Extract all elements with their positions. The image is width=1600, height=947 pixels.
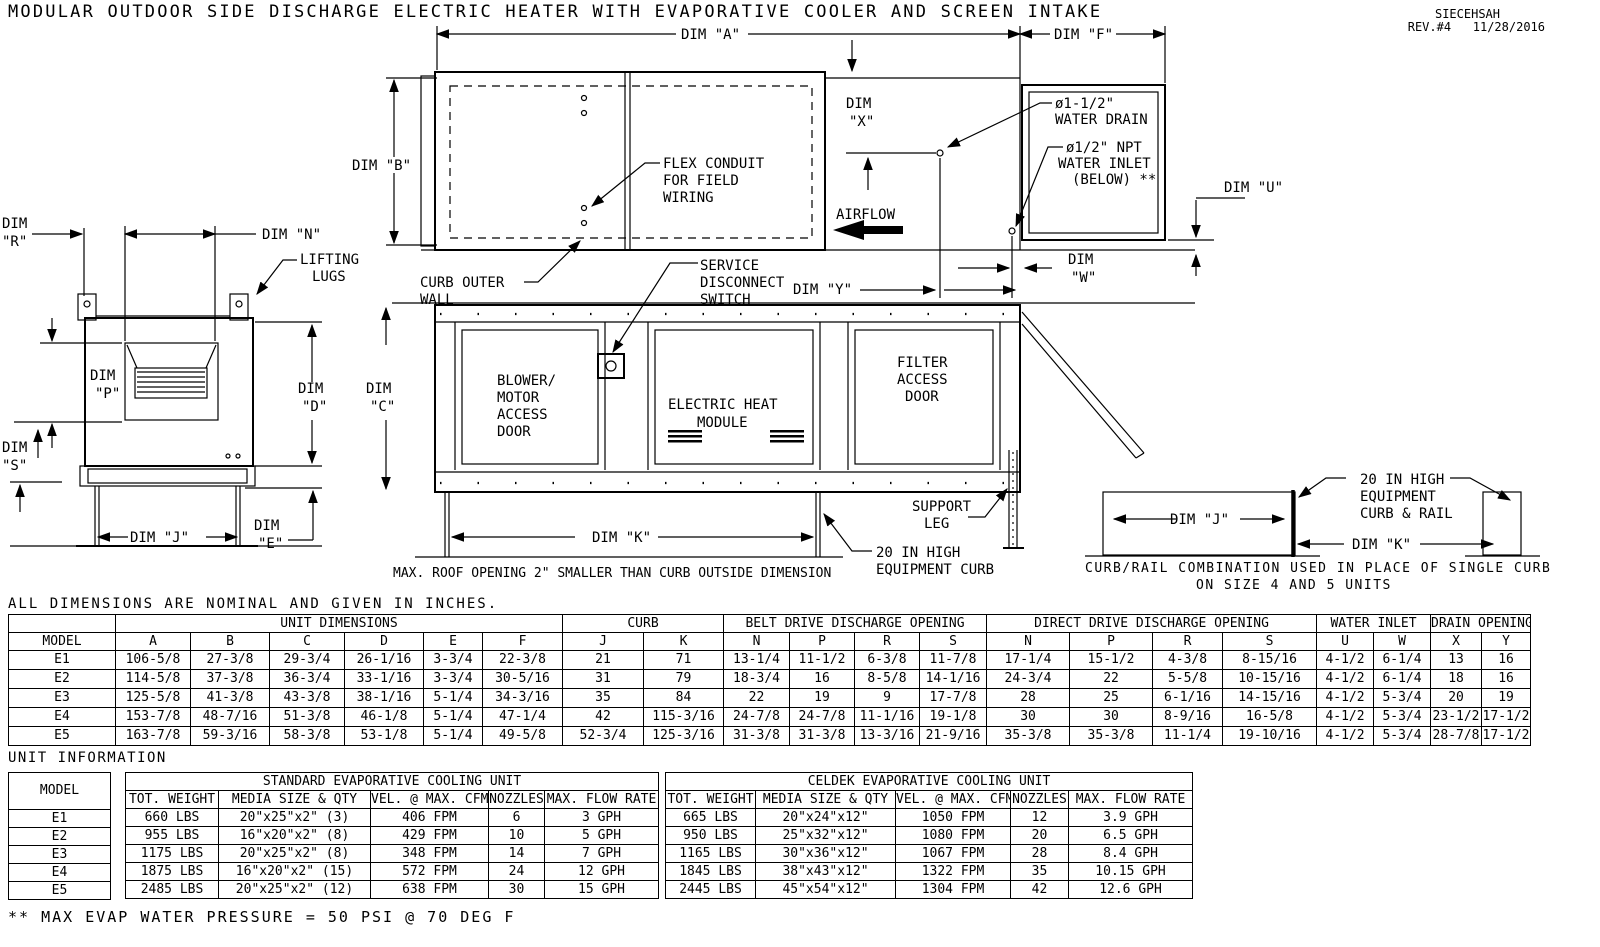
table-cell: 28-7/8 (1431, 727, 1482, 746)
dim-c-label: "C" (370, 399, 395, 415)
filter-door-label: ACCESS (897, 372, 948, 388)
table-cell: 11-1/4 (1153, 727, 1223, 746)
model-header: MODEL (9, 773, 111, 810)
dim-x-label: DIM (846, 96, 871, 112)
column-header: R (1153, 633, 1223, 651)
table-row: E4 (9, 864, 111, 882)
table-cell: 30"x36"x12" (756, 845, 896, 863)
standard-table-body: 660 LBS20"x25"x2" (3)406 FPM63 GPH955 LB… (126, 809, 659, 899)
curb-rail-label: EQUIPMENT (1360, 489, 1436, 505)
column-header: E (424, 633, 483, 651)
table-cell: 29-3/4 (270, 651, 345, 670)
standard-title-row: STANDARD EVAPORATIVE COOLING UNIT (126, 773, 659, 791)
column-header: F (483, 633, 563, 651)
table-cell: 10-15/16 (1223, 670, 1317, 689)
table-cell: 5-1/4 (424, 689, 483, 708)
table-cell: 37-3/8 (191, 670, 270, 689)
table-cell: 5-1/4 (424, 727, 483, 746)
table-cell: 22 (724, 689, 790, 708)
table-cell: 1304 FPM (896, 881, 1011, 899)
water-inlet-label: WATER INLET (1058, 156, 1151, 172)
table-cell: 7 GPH (545, 845, 659, 863)
table-cell: E3 (9, 689, 116, 708)
table-cell: E2 (9, 828, 111, 846)
table-cell: 955 LBS (126, 827, 219, 845)
table-cell: 13-1/4 (724, 651, 790, 670)
column-header: R (855, 633, 920, 651)
table-cell: 30 (489, 881, 545, 899)
equipment-curb-label: EQUIPMENT CURB (876, 562, 994, 578)
table-cell: 51-3/8 (270, 708, 345, 727)
table-cell: 8-9/16 (1153, 708, 1223, 727)
column-header: N (987, 633, 1070, 651)
table-row: 1165 LBS30"x36"x12"1067 FPM288.4 GPH (666, 845, 1193, 863)
dim-s-label: DIM (2, 440, 27, 456)
table-cell: 21 (563, 651, 644, 670)
table-cell: 6-1/16 (1153, 689, 1223, 708)
table-cell: 3 GPH (545, 809, 659, 827)
dim-k-label: DIM "K" (592, 530, 651, 546)
service-disconnect-label: SERVICE (700, 258, 759, 274)
table-cell: 20"x25"x2" (12) (219, 881, 371, 899)
dimensions-note: ALL DIMENSIONS ARE NOMINAL AND GIVEN IN … (8, 596, 498, 612)
service-disconnect-label: DISCONNECT (700, 275, 785, 291)
table-cell: 28 (987, 689, 1070, 708)
table-cell: 43-3/8 (270, 689, 345, 708)
column-header: D (345, 633, 424, 651)
table-cell: 14-15/16 (1223, 689, 1317, 708)
table-cell: 15-1/2 (1070, 651, 1153, 670)
front-elevation: BLOWER/ MOTOR ACCESS DOOR ELECTRIC HEAT … (393, 305, 1144, 581)
table-cell: 8-5/8 (855, 670, 920, 689)
technical-drawing: DIM "R" DIM "N" LIFTING LUGS DIM "P" DIM… (0, 0, 1600, 600)
blower-door-label: BLOWER/ (497, 373, 556, 389)
dim-b-label: DIM "B" (352, 158, 411, 174)
table-cell: 1322 FPM (896, 863, 1011, 881)
column-header: P (1070, 633, 1153, 651)
table-cell: 20"x25"x2" (3) (219, 809, 371, 827)
table-cell: 16-5/8 (1223, 708, 1317, 727)
table-cell: 49-5/8 (483, 727, 563, 746)
column-header: NOZZLES (489, 791, 545, 809)
column-header: VEL. @ MAX. CFM (371, 791, 489, 809)
filter-door-label: FILTER (897, 355, 948, 371)
curb-rail-label: 20 IN HIGH (1360, 472, 1444, 488)
filter-door-label: DOOR (905, 389, 939, 405)
table-row: 1845 LBS38"x43"x12"1322 FPM3510.15 GPH (666, 863, 1193, 881)
table-row: 2485 LBS20"x25"x2" (12)638 FPM3015 GPH (126, 881, 659, 899)
table-cell: 45"x54"x12" (756, 881, 896, 899)
model-table: MODEL E1E2E3E4E5 (8, 772, 111, 900)
plan-view: DIM "A" DIM "F" DIM "B" DIM "X" ø1-1/2" … (348, 26, 1283, 352)
column-header: C (270, 633, 345, 651)
table-cell: 4-3/8 (1153, 651, 1223, 670)
table-cell: 4-1/2 (1317, 651, 1374, 670)
standard-header-row: TOT. WEIGHT MEDIA SIZE & QTY VEL. @ MAX.… (126, 791, 659, 809)
table-cell: 19 (790, 689, 855, 708)
table-cell: 8.4 GPH (1069, 845, 1193, 863)
dim-e-label: "E" (258, 536, 283, 552)
dimension-table: UNIT DIMENSIONS CURB BELT DRIVE DISCHARG… (8, 614, 1531, 746)
dim-u-label: DIM "U" (1224, 180, 1283, 196)
water-drain-label: WATER DRAIN (1055, 112, 1148, 128)
table-cell: 12.6 GPH (1069, 881, 1193, 899)
table-cell: 3-3/4 (424, 670, 483, 689)
table-cell: 6-3/8 (855, 651, 920, 670)
table-cell: 1165 LBS (666, 845, 756, 863)
end-view: DIM "R" DIM "N" LIFTING LUGS DIM "P" DIM… (2, 216, 395, 552)
drawing-sheet: { "meta": { "title": "MODULAR OUTDOOR SI… (0, 0, 1600, 947)
curb-rail-note: CURB/RAIL COMBINATION USED IN PLACE OF S… (1085, 561, 1551, 576)
lifting-lugs-label: LUGS (312, 269, 346, 285)
table-cell: E4 (9, 708, 116, 727)
table-cell: 17-1/2 (1482, 708, 1531, 727)
table-cell: E1 (9, 810, 111, 828)
flex-conduit-label: WIRING (663, 190, 714, 206)
table-cell: 42 (1011, 881, 1069, 899)
table-row: 2445 LBS45"x54"x12"1304 FPM4212.6 GPH (666, 881, 1193, 899)
dim-p-label: DIM (90, 368, 115, 384)
group-header-water-inlet: WATER INLET (1317, 615, 1431, 633)
table-cell: 22 (1070, 670, 1153, 689)
celdek-title-row: CELDEK EVAPORATIVE COOLING UNIT (666, 773, 1193, 791)
table-row: E1 (9, 810, 111, 828)
table-cell: 17-1/4 (987, 651, 1070, 670)
table-cell: 20 (1431, 689, 1482, 708)
dim-y-label: DIM "Y" (793, 282, 852, 298)
table-cell: 38-1/16 (345, 689, 424, 708)
table-cell: 11-7/8 (920, 651, 987, 670)
airflow-arrow-icon (833, 220, 903, 240)
table-cell: 348 FPM (371, 845, 489, 863)
standard-table-title: STANDARD EVAPORATIVE COOLING UNIT (126, 773, 659, 791)
table-cell: 19-1/8 (920, 708, 987, 727)
celdek-evap-table: CELDEK EVAPORATIVE COOLING UNIT TOT. WEI… (665, 772, 1193, 899)
table-row: E5 (9, 882, 111, 900)
table-cell: 16 (790, 670, 855, 689)
curb-rail-detail: DIM "J" DIM "K" 20 IN HIGH EQUIPMENT CUR… (1085, 472, 1551, 593)
table-cell: E1 (9, 651, 116, 670)
table-cell: 24-7/8 (790, 708, 855, 727)
flex-conduit-label: FOR FIELD (663, 173, 739, 189)
table-cell: 638 FPM (371, 881, 489, 899)
dim-c-label: DIM (366, 381, 391, 397)
vent-icon (770, 430, 804, 433)
electric-heat-label: MODULE (697, 415, 748, 431)
column-header: MAX. FLOW RATE (545, 791, 659, 809)
table-cell: 18-3/4 (724, 670, 790, 689)
table-cell: 16"x20"x2" (8) (219, 827, 371, 845)
table-cell: 11-1/16 (855, 708, 920, 727)
group-header-curb: CURB (563, 615, 724, 633)
table-cell: 18 (1431, 670, 1482, 689)
model-table-body: E1E2E3E4E5 (9, 810, 111, 900)
table-cell: 19 (1482, 689, 1531, 708)
column-header: TOT. WEIGHT (666, 791, 756, 809)
column-header: TOT. WEIGHT (126, 791, 219, 809)
table-cell: 1050 FPM (896, 809, 1011, 827)
table-cell: 31-3/8 (790, 727, 855, 746)
dim-w-label: DIM (1068, 252, 1093, 268)
dimension-table-body: E1106-5/827-3/829-3/426-1/163-3/422-3/82… (9, 651, 1531, 746)
column-header: X (1431, 633, 1482, 651)
table-cell: 38"x43"x12" (756, 863, 896, 881)
table-cell: 115-3/16 (644, 708, 724, 727)
celdek-table-body: 665 LBS20"x24"x12"1050 FPM123.9 GPH950 L… (666, 809, 1193, 899)
dim-s-label: "S" (2, 458, 27, 474)
table-cell: 52-3/4 (563, 727, 644, 746)
table-cell: 4-1/2 (1317, 708, 1374, 727)
column-header: P (790, 633, 855, 651)
curb-outer-wall-label: CURB OUTER (420, 275, 505, 291)
blower-door-label: DOOR (497, 424, 531, 440)
service-disconnect-switch (598, 354, 624, 378)
table-cell: 2445 LBS (666, 881, 756, 899)
table-cell: 665 LBS (666, 809, 756, 827)
column-header: J (563, 633, 644, 651)
table-row: 955 LBS16"x20"x2" (8)429 FPM105 GPH (126, 827, 659, 845)
dim-p-label: "P" (95, 386, 120, 402)
table-row: 660 LBS20"x25"x2" (3)406 FPM63 GPH (126, 809, 659, 827)
table-cell: 24-3/4 (987, 670, 1070, 689)
group-header-unit-dimensions: UNIT DIMENSIONS (116, 615, 563, 633)
table-cell: 106-5/8 (116, 651, 191, 670)
table-row: E5163-7/859-3/1658-3/853-1/85-1/449-5/85… (9, 727, 1531, 746)
column-header: B (191, 633, 270, 651)
table-column-header-row: MODEL A B C D E F J K N P R S N P R S U … (9, 633, 1531, 651)
column-header: Y (1482, 633, 1531, 651)
table-cell: 30 (987, 708, 1070, 727)
table-cell: 59-3/16 (191, 727, 270, 746)
table-cell: 5-3/4 (1374, 727, 1431, 746)
table-cell: 9 (855, 689, 920, 708)
table-cell: 30 (1070, 708, 1153, 727)
electric-heat-label: ELECTRIC HEAT (668, 397, 778, 413)
celdek-header-row: TOT. WEIGHT MEDIA SIZE & QTY VEL. @ MAX.… (666, 791, 1193, 809)
table-cell: 13-3/16 (855, 727, 920, 746)
dim-d-label: "D" (302, 399, 327, 415)
dim-d-label: DIM (298, 381, 323, 397)
table-cell: 20"x25"x2" (8) (219, 845, 371, 863)
lifting-lugs-label: LIFTING (300, 252, 359, 268)
table-cell: 16"x20"x2" (15) (219, 863, 371, 881)
column-header: N (724, 633, 790, 651)
table-row: 950 LBS25"x32"x12"1080 FPM206.5 GPH (666, 827, 1193, 845)
group-header-blank (9, 615, 116, 633)
table-cell: 30-5/16 (483, 670, 563, 689)
table-cell: 8-15/16 (1223, 651, 1317, 670)
table-row: E2 (9, 828, 111, 846)
table-cell: 20"x24"x12" (756, 809, 896, 827)
dim-j-label: DIM "J" (130, 530, 189, 546)
table-cell: 20 (1011, 827, 1069, 845)
table-cell: 1175 LBS (126, 845, 219, 863)
table-cell: 33-1/16 (345, 670, 424, 689)
table-cell: 19-10/16 (1223, 727, 1317, 746)
table-cell: 21-9/16 (920, 727, 987, 746)
standard-evap-table: STANDARD EVAPORATIVE COOLING UNIT TOT. W… (125, 772, 659, 899)
table-row: E2114-5/837-3/836-3/433-1/163-3/430-5/16… (9, 670, 1531, 689)
table-cell: 17-1/2 (1482, 727, 1531, 746)
table-cell: 4-1/2 (1317, 670, 1374, 689)
unit-information-title: UNIT INFORMATION (8, 750, 167, 766)
table-cell: 27-3/8 (191, 651, 270, 670)
table-cell: 35-3/8 (1070, 727, 1153, 746)
table-cell: 71 (644, 651, 724, 670)
table-cell: 3.9 GPH (1069, 809, 1193, 827)
dim-j-label: DIM "J" (1170, 512, 1229, 528)
table-cell: 950 LBS (666, 827, 756, 845)
table-cell: 1845 LBS (666, 863, 756, 881)
dim-n-label: DIM "N" (262, 227, 321, 243)
table-cell: 41-3/8 (191, 689, 270, 708)
water-inlet-label: ø1/2" NPT (1066, 140, 1142, 156)
table-cell: 125-3/16 (644, 727, 724, 746)
table-cell: 47-1/4 (483, 708, 563, 727)
table-cell: 163-7/8 (116, 727, 191, 746)
dim-k-label: DIM "K" (1352, 537, 1411, 553)
table-row: E4153-7/848-7/1651-3/846-1/85-1/447-1/44… (9, 708, 1531, 727)
table-cell: 24-7/8 (724, 708, 790, 727)
table-cell: 12 (1011, 809, 1069, 827)
table-cell: 35-3/8 (987, 727, 1070, 746)
table-cell: 6-1/4 (1374, 670, 1431, 689)
curb-rail-label: CURB & RAIL (1360, 506, 1453, 522)
table-cell: 5-3/4 (1374, 708, 1431, 727)
airflow-label: AIRFLOW (836, 207, 896, 223)
table-cell: 16 (1482, 670, 1531, 689)
table-cell: 5-1/4 (424, 708, 483, 727)
curb-rail-note: ON SIZE 4 AND 5 UNITS (1196, 578, 1392, 593)
column-header: S (920, 633, 987, 651)
table-cell: 14 (489, 845, 545, 863)
column-header: NOZZLES (1011, 791, 1069, 809)
table-cell: 34-3/16 (483, 689, 563, 708)
table-cell: 4-1/2 (1317, 727, 1374, 746)
table-cell: 58-3/8 (270, 727, 345, 746)
blower-door-label: MOTOR (497, 390, 540, 406)
equipment-curb-label: 20 IN HIGH (876, 545, 960, 561)
table-cell: 11-1/2 (790, 651, 855, 670)
column-header: U (1317, 633, 1374, 651)
table-cell: E4 (9, 864, 111, 882)
water-inlet-label: (BELOW) ** (1072, 172, 1156, 188)
table-cell: 572 FPM (371, 863, 489, 881)
table-cell: 31-3/8 (724, 727, 790, 746)
table-cell: 6-1/4 (1374, 651, 1431, 670)
table-cell: 25 (1070, 689, 1153, 708)
table-cell: 26-1/16 (345, 651, 424, 670)
group-header-drain-opening: DRAIN OPENING (1431, 615, 1531, 633)
table-cell: 46-1/8 (345, 708, 424, 727)
celdek-table-title: CELDEK EVAPORATIVE COOLING UNIT (666, 773, 1193, 791)
blower-door-label: ACCESS (497, 407, 548, 423)
table-cell: 2485 LBS (126, 881, 219, 899)
table-cell: 1875 LBS (126, 863, 219, 881)
footnote: ** MAX EVAP WATER PRESSURE = 50 PSI @ 70… (8, 908, 515, 926)
table-cell: 125-5/8 (116, 689, 191, 708)
table-cell: 31 (563, 670, 644, 689)
group-header-direct-drive: DIRECT DRIVE DISCHARGE OPENING (987, 615, 1317, 633)
table-cell: 1080 FPM (896, 827, 1011, 845)
table-cell: 35 (563, 689, 644, 708)
table-cell: 1067 FPM (896, 845, 1011, 863)
table-cell: 5 GPH (545, 827, 659, 845)
table-cell: 17-7/8 (920, 689, 987, 708)
column-header: S (1223, 633, 1317, 651)
support-leg-label: SUPPORT (912, 499, 972, 515)
table-row: E3 (9, 846, 111, 864)
table-cell: 5-3/4 (1374, 689, 1431, 708)
table-cell: 114-5/8 (116, 670, 191, 689)
table-cell: 6 (489, 809, 545, 827)
table-row: 665 LBS20"x24"x12"1050 FPM123.9 GPH (666, 809, 1193, 827)
table-cell: 4-1/2 (1317, 689, 1374, 708)
dim-x-label: "X" (849, 114, 874, 130)
table-cell: 3-3/4 (424, 651, 483, 670)
table-cell: 36-3/4 (270, 670, 345, 689)
table-cell: 22-3/8 (483, 651, 563, 670)
column-header: W (1374, 633, 1431, 651)
model-header-row: MODEL (9, 773, 111, 810)
table-cell: 660 LBS (126, 809, 219, 827)
table-cell: 35 (1011, 863, 1069, 881)
roof-opening-note: MAX. ROOF OPENING 2" SMALLER THAN CURB O… (393, 566, 831, 581)
table-cell: 16 (1482, 651, 1531, 670)
dim-r-label: "R" (2, 234, 27, 250)
table-cell: 23-1/2 (1431, 708, 1482, 727)
dim-e-label: DIM (254, 518, 279, 534)
table-cell: 406 FPM (371, 809, 489, 827)
table-row: E3125-5/841-3/843-3/838-1/165-1/434-3/16… (9, 689, 1531, 708)
table-cell: 5-5/8 (1153, 670, 1223, 689)
table-row: 1875 LBS16"x20"x2" (15)572 FPM2412 GPH (126, 863, 659, 881)
table-cell: 429 FPM (371, 827, 489, 845)
support-leg-label: LEG (924, 516, 949, 532)
table-cell: 25"x32"x12" (756, 827, 896, 845)
table-cell: 24 (489, 863, 545, 881)
table-cell: 10.15 GPH (1069, 863, 1193, 881)
table-cell: 53-1/8 (345, 727, 424, 746)
table-cell: 12 GPH (545, 863, 659, 881)
column-header: MODEL (9, 633, 116, 651)
table-cell: E2 (9, 670, 116, 689)
water-drain-label: ø1-1/2" (1055, 96, 1114, 112)
dim-f-label: DIM "F" (1054, 27, 1113, 43)
table-cell: 153-7/8 (116, 708, 191, 727)
table-cell: 14-1/16 (920, 670, 987, 689)
table-cell: 15 GPH (545, 881, 659, 899)
table-cell: E5 (9, 727, 116, 746)
table-cell: 84 (644, 689, 724, 708)
table-cell: 28 (1011, 845, 1069, 863)
table-cell: E3 (9, 846, 111, 864)
table-row: 1175 LBS20"x25"x2" (8)348 FPM147 GPH (126, 845, 659, 863)
dim-a-label: DIM "A" (681, 27, 740, 43)
table-cell: 42 (563, 708, 644, 727)
flex-conduit-label: FLEX CONDUIT (663, 156, 765, 172)
table-row: E1106-5/827-3/829-3/426-1/163-3/422-3/82… (9, 651, 1531, 670)
dim-r-label: DIM (2, 216, 27, 232)
column-header: K (644, 633, 724, 651)
table-cell: 79 (644, 670, 724, 689)
table-cell: 10 (489, 827, 545, 845)
table-cell: 13 (1431, 651, 1482, 670)
group-header-belt-drive: BELT DRIVE DISCHARGE OPENING (724, 615, 987, 633)
column-header: MEDIA SIZE & QTY (219, 791, 371, 809)
table-cell: 48-7/16 (191, 708, 270, 727)
table-cell: E5 (9, 882, 111, 900)
